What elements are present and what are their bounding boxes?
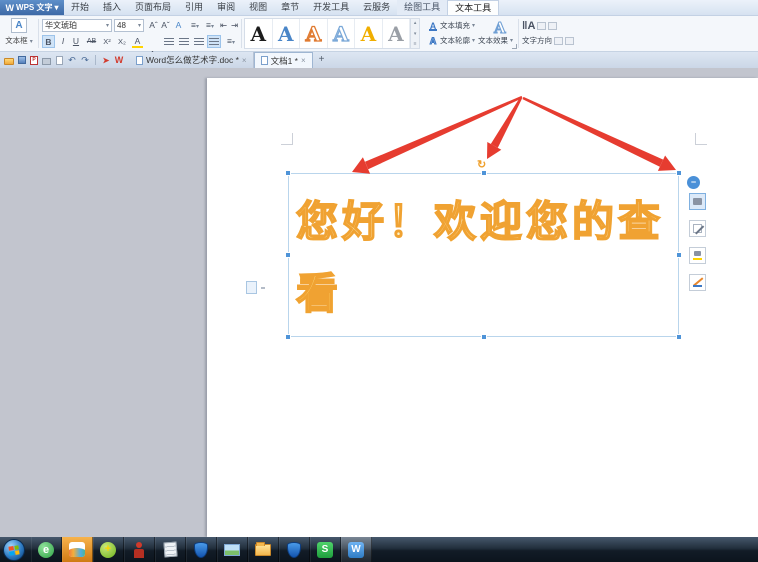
taskbar-item-antivirus[interactable]: + bbox=[93, 537, 124, 562]
margin-mark-top-left bbox=[281, 133, 293, 145]
resize-handle-top-left[interactable] bbox=[285, 170, 291, 176]
image-viewer-icon bbox=[224, 544, 240, 556]
resize-handle-middle-right[interactable] bbox=[676, 252, 682, 258]
title-bar: W WPS 文字 ▾ 开始 插入 页面布局 引用 审阅 视图 章节 开发工具 云… bbox=[0, 0, 758, 16]
wordart-style-blue-fill[interactable]: A bbox=[273, 19, 301, 48]
italic-button[interactable]: I bbox=[57, 35, 69, 48]
increase-indent-button[interactable]: ⇥ bbox=[229, 19, 240, 32]
text-direction-button[interactable]: 文字方向 bbox=[522, 35, 552, 46]
chevron-down-icon[interactable]: ▾ bbox=[106, 20, 109, 32]
taskbar-item-360-browser-active[interactable] bbox=[62, 537, 93, 562]
redo-icon[interactable]: ↷ bbox=[80, 55, 90, 65]
document-canvas[interactable]: ↻ 您好！欢迎您的查 看 − bbox=[0, 68, 758, 537]
gallery-up-icon: ▴ bbox=[414, 20, 417, 26]
strikethrough-button[interactable]: AB bbox=[84, 35, 99, 48]
chevron-down-icon: ▾ bbox=[472, 22, 475, 29]
windows-flag-icon bbox=[8, 545, 19, 555]
font-size-combobox[interactable]: 48▾ bbox=[114, 19, 144, 32]
gallery-down-icon: ▾ bbox=[414, 31, 417, 37]
wps-logo-icon: W bbox=[6, 3, 15, 13]
shrink-font-button[interactable]: Aˇ bbox=[160, 19, 171, 32]
chevron-down-icon: ▾ bbox=[510, 37, 513, 44]
menu-tab-strip: 开始 插入 页面布局 引用 审阅 视图 章节 开发工具 云服务 绘图工具 文本工… bbox=[64, 0, 499, 15]
shield-icon bbox=[194, 542, 208, 558]
taskbar-item-wps-active[interactable]: W bbox=[341, 537, 372, 562]
print-icon[interactable] bbox=[41, 55, 51, 65]
underline-button[interactable]: U bbox=[70, 35, 82, 48]
tab-home[interactable]: 开始 bbox=[64, 0, 96, 15]
align-left-icon bbox=[164, 38, 174, 46]
justify-button[interactable] bbox=[207, 35, 221, 48]
wordart-style-gold-fill[interactable]: A bbox=[355, 19, 383, 48]
tab-view[interactable]: 视图 bbox=[242, 0, 274, 15]
paint-bucket-icon bbox=[693, 251, 702, 260]
document-tab-1[interactable]: Word怎么做艺术字.doc * × bbox=[130, 52, 254, 68]
document-tab-bar: P ↶ ↷ ➤ W Word怎么做艺术字.doc * × 文档1 * × + bbox=[0, 52, 758, 68]
taskbar-item-browser[interactable]: e bbox=[31, 537, 62, 562]
object-anchor-icon bbox=[246, 281, 257, 294]
wordart-style-gray-fill[interactable]: A bbox=[383, 19, 411, 48]
textbox-group[interactable]: A 文本框 ▾ bbox=[2, 18, 36, 46]
close-icon[interactable]: × bbox=[242, 56, 247, 65]
subscript-button[interactable]: X₂ bbox=[115, 35, 129, 48]
align-right-button[interactable] bbox=[192, 35, 206, 48]
gallery-more-icon: ≡ bbox=[414, 41, 417, 47]
edit-shape-button[interactable] bbox=[689, 220, 706, 237]
close-icon[interactable]: × bbox=[301, 56, 306, 65]
print-preview-icon[interactable] bbox=[54, 55, 64, 65]
wordart-style-orange-outline[interactable]: A bbox=[300, 19, 328, 48]
layout-options-icon bbox=[693, 198, 702, 205]
red-figure-icon bbox=[132, 542, 146, 558]
taskbar-item-shield-1[interactable] bbox=[186, 537, 217, 562]
decrease-indent-button[interactable]: ⇤ bbox=[218, 19, 229, 32]
textbox-icon[interactable]: A bbox=[11, 18, 27, 33]
font-size-value: 48 bbox=[117, 20, 126, 32]
phonetic-guide-button[interactable]: A bbox=[173, 19, 184, 32]
undo-icon[interactable]: ↶ bbox=[67, 55, 77, 65]
line-spacing-button[interactable]: ≡▾ bbox=[223, 35, 239, 48]
tab-section[interactable]: 章节 bbox=[274, 0, 306, 15]
toolbar-separator bbox=[95, 55, 96, 65]
text-fill-icon: A bbox=[428, 21, 438, 31]
outline-color-button[interactable] bbox=[689, 274, 706, 291]
360-browser-icon bbox=[69, 542, 85, 557]
dialog-launcher-icon[interactable] bbox=[512, 44, 517, 49]
bullets-button[interactable]: ≡▾ bbox=[188, 19, 202, 32]
taskbar-item-explorer[interactable] bbox=[248, 537, 279, 562]
group-separator bbox=[518, 19, 519, 48]
fill-color-button[interactable] bbox=[689, 247, 706, 264]
logo-dropdown-icon[interactable]: ▾ bbox=[54, 3, 58, 12]
document-tab-2-active[interactable]: 文档1 * × bbox=[254, 52, 313, 68]
antivirus-ball-icon: + bbox=[100, 542, 116, 558]
wps-w-icon: W bbox=[348, 542, 364, 558]
font-name-combobox[interactable]: 华文琥珀▾ bbox=[42, 19, 112, 32]
chevron-down-icon: ▾ bbox=[472, 37, 475, 44]
floating-toolbar-collapse-button[interactable]: − bbox=[687, 176, 700, 189]
layout-options-button[interactable] bbox=[689, 193, 706, 210]
tab-text-tools[interactable]: 文本工具 bbox=[447, 0, 499, 15]
document-icon bbox=[136, 56, 143, 65]
shortcut-icon[interactable]: ➤ bbox=[101, 55, 111, 65]
bold-button[interactable]: B bbox=[42, 35, 55, 48]
grow-font-button[interactable]: Aˆ bbox=[148, 19, 159, 32]
wordart-text[interactable]: 您好！欢迎您的查 看 bbox=[296, 186, 676, 330]
shield-icon bbox=[287, 542, 301, 558]
text-direction-group: ‖A 文字方向 bbox=[522, 18, 576, 48]
group-separator bbox=[38, 19, 39, 48]
align-center-button[interactable] bbox=[177, 35, 191, 48]
save-icon[interactable] bbox=[17, 55, 27, 65]
quick-access-toolbar: P ↶ ↷ ➤ W bbox=[0, 55, 124, 65]
pencil-icon bbox=[693, 224, 702, 233]
ribbon: A 文本框 ▾ 华文琥珀▾ 48▾ Aˆ Aˇ A ≡▾ ≡▾ ⇤ ⇥ B I … bbox=[0, 16, 758, 52]
start-button[interactable] bbox=[3, 539, 25, 561]
new-document-tab-button[interactable]: + bbox=[313, 52, 331, 68]
chevron-down-icon: ▾ bbox=[30, 39, 33, 45]
wps-hotkey-icon[interactable]: W bbox=[114, 55, 124, 65]
resize-handle-top-right[interactable] bbox=[676, 170, 682, 176]
wordart-style-blue-outline[interactable]: A bbox=[328, 19, 356, 48]
textbox-label: 文本框 bbox=[5, 36, 28, 45]
folder-icon bbox=[255, 544, 271, 556]
tab-references[interactable]: 引用 bbox=[178, 0, 210, 15]
taskbar-item-image-viewer[interactable] bbox=[217, 537, 248, 562]
document-icon bbox=[261, 56, 268, 65]
tab-review[interactable]: 审阅 bbox=[210, 0, 242, 15]
tab-page-layout[interactable]: 页面布局 bbox=[128, 0, 178, 15]
margin-mark-top-right bbox=[695, 133, 707, 145]
chevron-down-icon[interactable]: ▾ bbox=[138, 20, 141, 32]
taskbar-item-notepad[interactable] bbox=[155, 537, 186, 562]
wordart-line-2: 看 bbox=[296, 258, 676, 330]
browser-e-icon: e bbox=[38, 542, 54, 558]
rotate-handle[interactable]: ↻ bbox=[477, 158, 486, 171]
font-name-value: 华文琥珀 bbox=[45, 20, 77, 32]
document-tab-title: Word怎么做艺术字.doc * bbox=[146, 54, 239, 66]
taskbar-item-red-app[interactable] bbox=[124, 537, 155, 562]
wordart-line-1: 您好！欢迎您的查 bbox=[296, 186, 676, 258]
line-color-icon bbox=[693, 278, 702, 287]
taskbar-item-sogou[interactable]: S bbox=[310, 537, 341, 562]
open-documents: Word怎么做艺术字.doc * × 文档1 * × + bbox=[130, 52, 330, 68]
wordart-gallery-scroll[interactable]: ▴ ▾ ≡ bbox=[410, 19, 419, 48]
break-link-icon[interactable] bbox=[548, 22, 557, 30]
export-pdf-icon[interactable]: P bbox=[30, 56, 38, 65]
app-name: WPS 文字 bbox=[16, 2, 52, 13]
group-separator bbox=[241, 19, 242, 48]
resize-handle-bottom-center[interactable] bbox=[481, 334, 487, 340]
tab-cloud[interactable]: 云服务 bbox=[356, 0, 397, 15]
wordart-style-plain[interactable]: A bbox=[245, 19, 273, 48]
windows-taskbar: e + S W bbox=[0, 537, 758, 562]
prev-textbox-icon[interactable] bbox=[554, 37, 563, 45]
superscript-button[interactable]: X² bbox=[100, 35, 114, 48]
justify-icon bbox=[209, 38, 219, 46]
text-outline-icon: A bbox=[428, 36, 438, 46]
tab-insert[interactable]: 插入 bbox=[96, 0, 128, 15]
app-logo[interactable]: W WPS 文字 ▾ bbox=[0, 0, 64, 15]
notepad-icon bbox=[163, 542, 177, 558]
wps-writer-window: { "colors": { "accent_blue": "#4a90d8", … bbox=[0, 0, 758, 562]
next-textbox-icon[interactable] bbox=[565, 37, 574, 45]
taskbar-item-shield-2[interactable] bbox=[279, 537, 310, 562]
resize-handle-bottom-left[interactable] bbox=[285, 334, 291, 340]
linked-textbox-icon[interactable] bbox=[537, 22, 546, 30]
resize-handle-middle-left[interactable] bbox=[285, 252, 291, 258]
align-right-icon bbox=[194, 38, 204, 46]
highlight-color-button[interactable]: A bbox=[131, 35, 144, 48]
align-center-icon bbox=[179, 38, 189, 46]
align-left-button[interactable] bbox=[162, 35, 176, 48]
resize-handle-bottom-right[interactable] bbox=[676, 334, 682, 340]
wordart-style-gallery: A A A A A A ▴ ▾ ≡ bbox=[244, 18, 420, 49]
tab-drawing-tools[interactable]: 绘图工具 bbox=[397, 0, 447, 15]
numbering-button[interactable]: ≡▾ bbox=[203, 19, 217, 32]
open-folder-icon[interactable] bbox=[4, 55, 14, 65]
tab-developer[interactable]: 开发工具 bbox=[306, 0, 356, 15]
document-tab-title: 文档1 * bbox=[271, 55, 298, 67]
text-effects-button[interactable]: 文本效果▾ bbox=[478, 33, 513, 48]
text-direction-icon: ‖A bbox=[522, 20, 535, 32]
sogou-s-icon: S bbox=[317, 542, 333, 558]
